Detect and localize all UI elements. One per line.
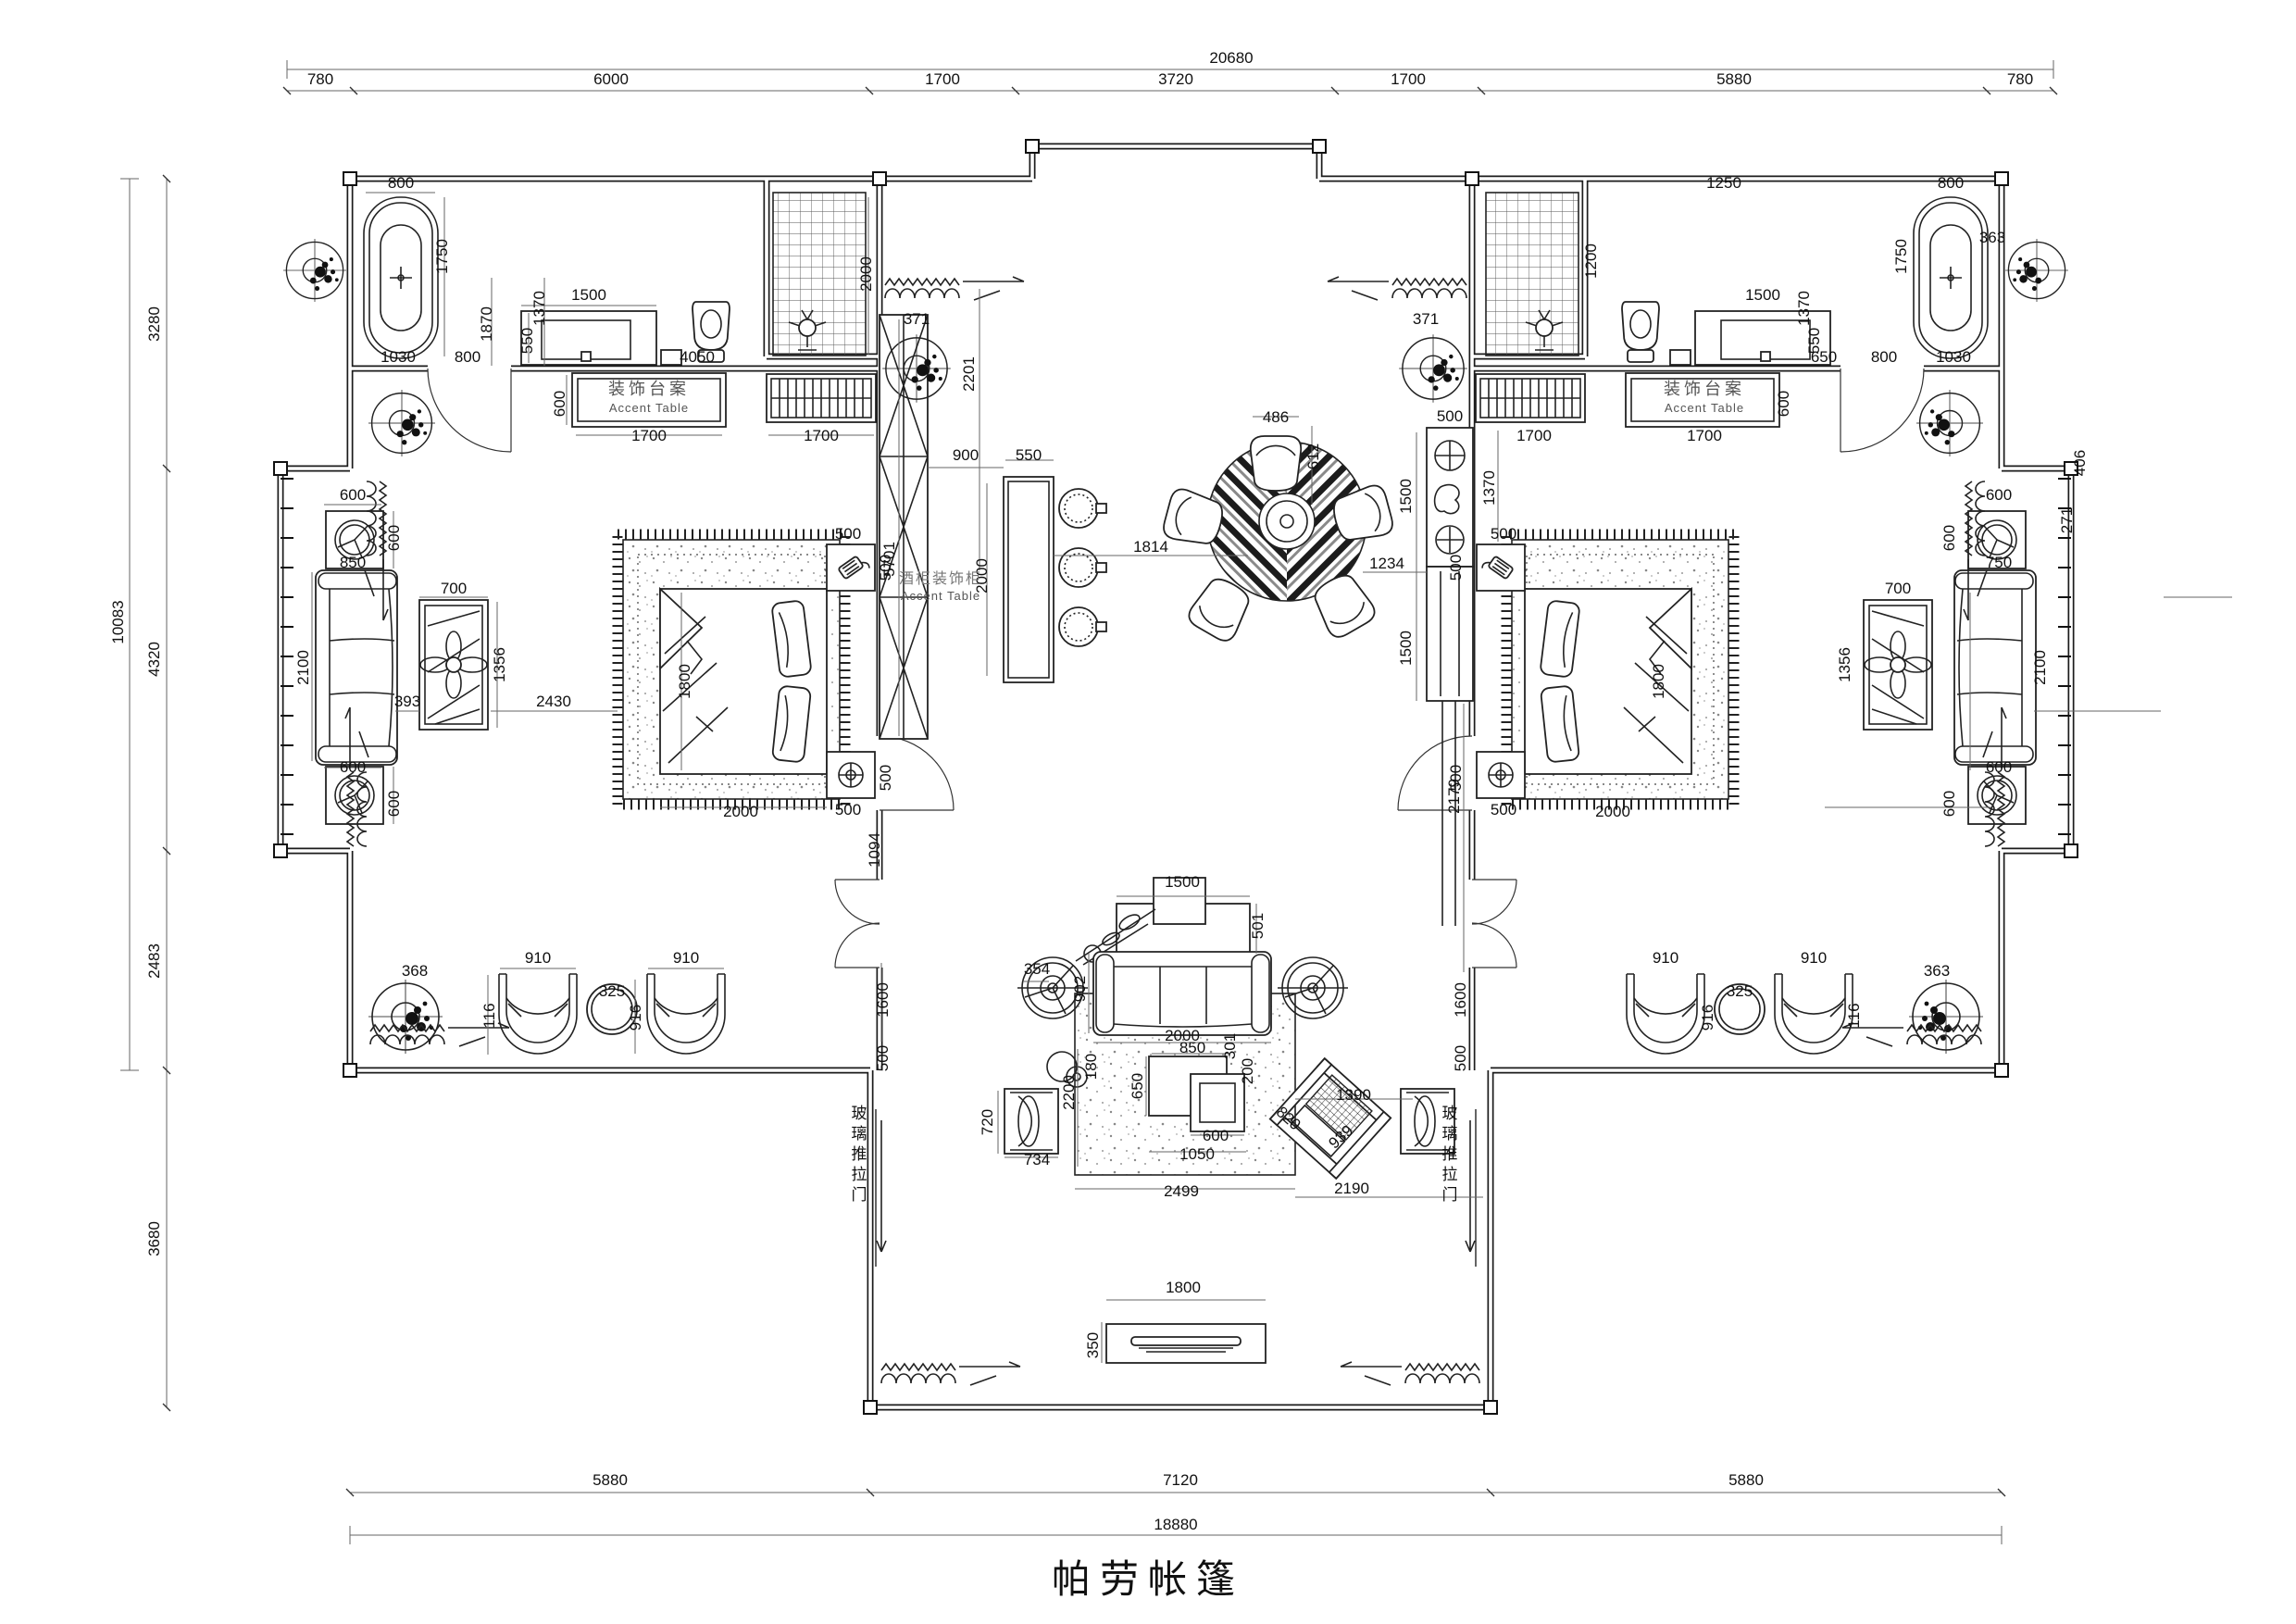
dimension-label: 800 [455,348,480,366]
dimension-label: 2200 [1060,1075,1078,1110]
dimension-label: 916 [1699,1005,1716,1031]
room-label: 玻璃推拉门 [1442,1105,1458,1204]
dimension-label: 1600 [874,982,892,1018]
dimension-label: 325 [1727,982,1753,1000]
dimension-label: 2000 [1595,803,1630,820]
dimension-label: 600 [1940,791,1958,817]
dimension-label: 1234 [1369,555,1404,572]
dimension-label: 1370 [1480,470,1498,506]
dimension-label: 600 [1986,486,2012,504]
dimension-label: 1500 [1397,479,1415,514]
dimension-label: 1094 [866,832,883,868]
dimension-label: 500 [874,1045,892,1071]
dimension-label: 5880 [1728,1471,1764,1489]
dimension-label: 780 [2007,70,2033,88]
dimension-label: 200 [1239,1058,1256,1084]
dimension-label: 550 [1016,446,1042,464]
dimension-label: 3720 [1158,70,1193,88]
room-label: 装饰台案 [1664,380,1745,398]
sofa [1093,952,1271,1035]
dimension-label: 1050 [1179,1145,1215,1163]
dimension-label: 1500 [1165,873,1200,891]
dimension-label: 800 [1938,174,1964,192]
dimension-label: 325 [599,982,625,1000]
dimension-label: Accent Table [901,589,980,603]
dimension-label: 550 [518,328,536,354]
dimension-label: 7120 [1163,1471,1198,1489]
dimension-label: 750 [1986,554,2012,571]
dimension-label: 2000 [857,256,875,292]
dimension-label: 271 [2058,507,2076,533]
dimension-label: 1250 [1706,174,1741,192]
dimension-label: 800 [388,174,414,192]
dimension-label: 363 [1924,962,1950,980]
dimension-label: 1800 [1166,1279,1201,1296]
dimension-label: 1600 [1452,982,1469,1018]
dimension-label: 2000 [723,803,758,820]
dimension-label: 486 [1263,408,1289,426]
dimension-label: 1500 [1745,286,1780,304]
drawing-title: 帕劳帐篷 [0,1548,2296,1605]
dimension-label: 20680 [1209,49,1253,67]
tv-console [1106,1324,1266,1363]
dimension-label: 3280 [145,306,163,342]
dimension-label: 910 [1801,949,1827,967]
bar-counter [1004,477,1054,682]
service-console-column [1427,428,1473,926]
dimension-label: 500 [835,525,861,543]
dimension-label: 10083 [109,600,127,643]
dimension-label: 1356 [491,647,508,682]
dimension-label: 600 [340,758,366,776]
dimension-label: Accent Table [1665,401,1744,415]
dimension-label: 501 [1249,913,1267,939]
dimension-label: 1370 [1795,291,1813,326]
dimension-label: 1750 [433,239,451,274]
dimension-label: 910 [673,949,699,967]
dimension-label: 368 [402,962,428,980]
annotation-layer: 2068078060001700372017005880780100833280… [109,49,2089,1533]
dimension-label: 4050 [680,348,715,366]
dimension-label: 910 [1653,949,1678,967]
floor-plan-drawing: 2068078060001700372017005880780100833280… [0,0,2296,1624]
dimension-label: 1700 [631,427,667,444]
dimension-label: 900 [953,446,979,464]
dimension-label: 354 [1024,960,1050,978]
room-label: 玻璃推拉门 [852,1105,867,1204]
dimension-label: 500 [1491,801,1516,818]
dimension-label: 600 [385,525,403,551]
dimension-label: 371 [1413,310,1439,328]
dimension-label: 500 [1452,1045,1469,1071]
living-pavilion [881,878,1479,1385]
dimension-label: 5701 [880,542,898,577]
dimension-label: 2483 [145,943,163,979]
dimension-label: Accent Table [609,401,689,415]
center-hall [880,315,1473,926]
dimension-label: 406 [2071,450,2089,476]
dimension-label: 6000 [593,70,629,88]
dimension-label: 734 [1024,1151,1050,1168]
dimension-label: 550 [1805,328,1823,354]
dimension-label: 2100 [2031,650,2049,685]
dimension-label: 5880 [593,1471,628,1489]
dimension-label: 850 [1179,1039,1205,1056]
dimension-label: 1700 [925,70,960,88]
dimension-label: 500 [835,801,861,818]
dimension-label: 2201 [960,356,978,392]
dimension-label: 1814 [1133,538,1168,556]
dimension-label: 910 [525,949,551,967]
dimension-label: 500 [1447,765,1465,791]
dimension-label: 612 [1304,443,1322,469]
floor-plan-sheet: 2068078060001700372017005880780100833280… [0,0,2296,1624]
dimension-label: 600 [385,791,403,817]
dimension-label: 780 [307,70,333,88]
dimension-label: 600 [1986,758,2012,776]
dimension-label: 902 [1071,976,1089,1002]
dimension-label: 1500 [571,286,606,304]
dimension-label: 116 [1845,1003,1863,1028]
dimension-label: 500 [877,765,894,791]
dimension-label: 393 [394,693,420,710]
dimension-label: 700 [441,580,467,597]
dimension-label: 850 [340,554,366,571]
dimension-label: 1700 [804,427,839,444]
dimension-label: 5880 [1716,70,1752,88]
dimension-label: 720 [979,1109,996,1135]
dimension-label: 600 [1775,391,1792,417]
dimension-label: 301 [1221,1033,1239,1059]
dimension-label: 1030 [1936,348,1971,366]
dimension-label: 3680 [145,1221,163,1256]
dimension-label: 371 [904,310,930,328]
dimension-label: 1700 [1687,427,1722,444]
dimension-lines [120,60,2232,1544]
dimension-label: 600 [1940,525,1958,551]
wine-display-cabinet [880,315,928,739]
dimension-label: 2100 [294,650,312,685]
dimension-label: 1800 [1650,664,1667,699]
dimension-label: 800 [1871,348,1897,366]
dimension-label: 1500 [1397,631,1415,666]
dimension-label: 916 [627,1005,644,1031]
dimension-label: 2499 [1164,1182,1199,1200]
dimension-label: 1370 [530,291,548,326]
dimension-label: 2190 [1334,1180,1369,1197]
dimension-label: 350 [1084,1332,1102,1358]
dimension-label: 600 [1203,1127,1229,1144]
dimension-label: 363 [1979,229,2005,246]
dimension-label: 600 [340,486,366,504]
dimension-label: 500 [1447,555,1465,581]
dimension-label: 116 [480,1003,498,1028]
dimension-label: 1700 [1391,70,1426,88]
room-label: 装饰台案 [608,380,690,398]
dimension-label: 1030 [381,348,416,366]
dimension-label: 2430 [536,693,571,710]
dimension-label: 1750 [1892,239,1910,274]
dimension-label: 1200 [1582,244,1600,279]
dimension-label: 700 [1885,580,1911,597]
dimension-label: 1356 [1836,647,1853,682]
dimension-label: 1870 [478,306,495,342]
dimension-label: 180 [1082,1054,1100,1080]
dimension-label: 1390 [1336,1086,1371,1104]
dimension-label: 4320 [145,642,163,677]
dimension-label: 18880 [1154,1516,1197,1533]
dimension-label: 600 [551,391,568,417]
room-label: 酒柜装饰柜 [899,570,982,587]
dimension-label: 650 [1129,1073,1146,1099]
dimension-label: 1800 [676,664,693,699]
dimension-label: 1700 [1516,427,1552,444]
dimension-label: 500 [1491,525,1516,543]
dimension-label: 500 [1437,407,1463,425]
